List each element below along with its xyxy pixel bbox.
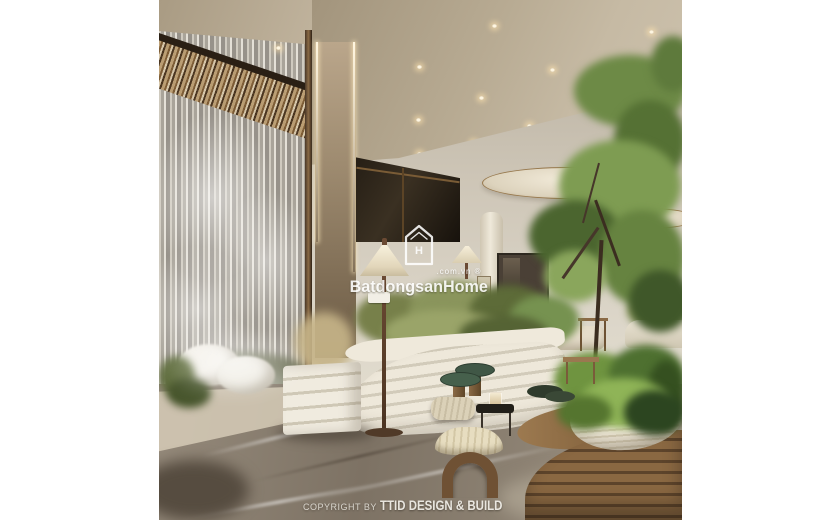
cream-stool	[431, 397, 475, 420]
svg-text:H: H	[415, 245, 423, 257]
bowl-plants	[624, 390, 682, 435]
watermark-domain: .com.vn ®	[436, 267, 481, 276]
bronze-pillar	[315, 42, 356, 358]
wood-console-leg	[604, 321, 606, 351]
copyright-line: COPYRIGHT BY TTID DESIGN & BUILD	[251, 497, 581, 515]
floor-lamp-base	[365, 428, 403, 437]
ceiling-spotlight	[416, 118, 421, 122]
wood-console-leg	[580, 321, 582, 351]
tree-foliage	[629, 270, 682, 332]
small-console-table-leg	[593, 362, 595, 384]
dark-side-table-top	[476, 404, 514, 413]
ceiling-spotlight	[492, 24, 497, 28]
watermark-house-logo-icon: H	[404, 224, 434, 266]
lobby-render-photo: H .com.vn ® BatdongsanHome COPYRIGHT BY …	[159, 0, 682, 520]
copyright-studio: TTID DESIGN & BUILD	[380, 497, 502, 513]
watermark: H .com.vn ® BatdongsanHome	[309, 224, 529, 297]
ceiling-spotlight	[276, 46, 281, 50]
pillar-led-strip	[316, 42, 318, 242]
saddle-stool-seat	[435, 427, 503, 455]
ceiling-spotlight	[550, 68, 555, 72]
ceiling-spotlight	[649, 30, 654, 34]
waterfall-mist-cloud	[159, 322, 309, 402]
watermark-brand: BatdongsanHome	[350, 277, 488, 297]
small-console-table-leg	[566, 362, 568, 384]
screenshot-canvas: H .com.vn ® BatdongsanHome COPYRIGHT BY …	[0, 0, 840, 520]
green-side-table-top	[440, 372, 481, 387]
copyright-prefix: COPYRIGHT BY	[303, 502, 380, 512]
leaf-table	[545, 391, 575, 402]
ceiling-spotlight	[479, 96, 484, 100]
ceiling-spotlight	[417, 65, 422, 69]
